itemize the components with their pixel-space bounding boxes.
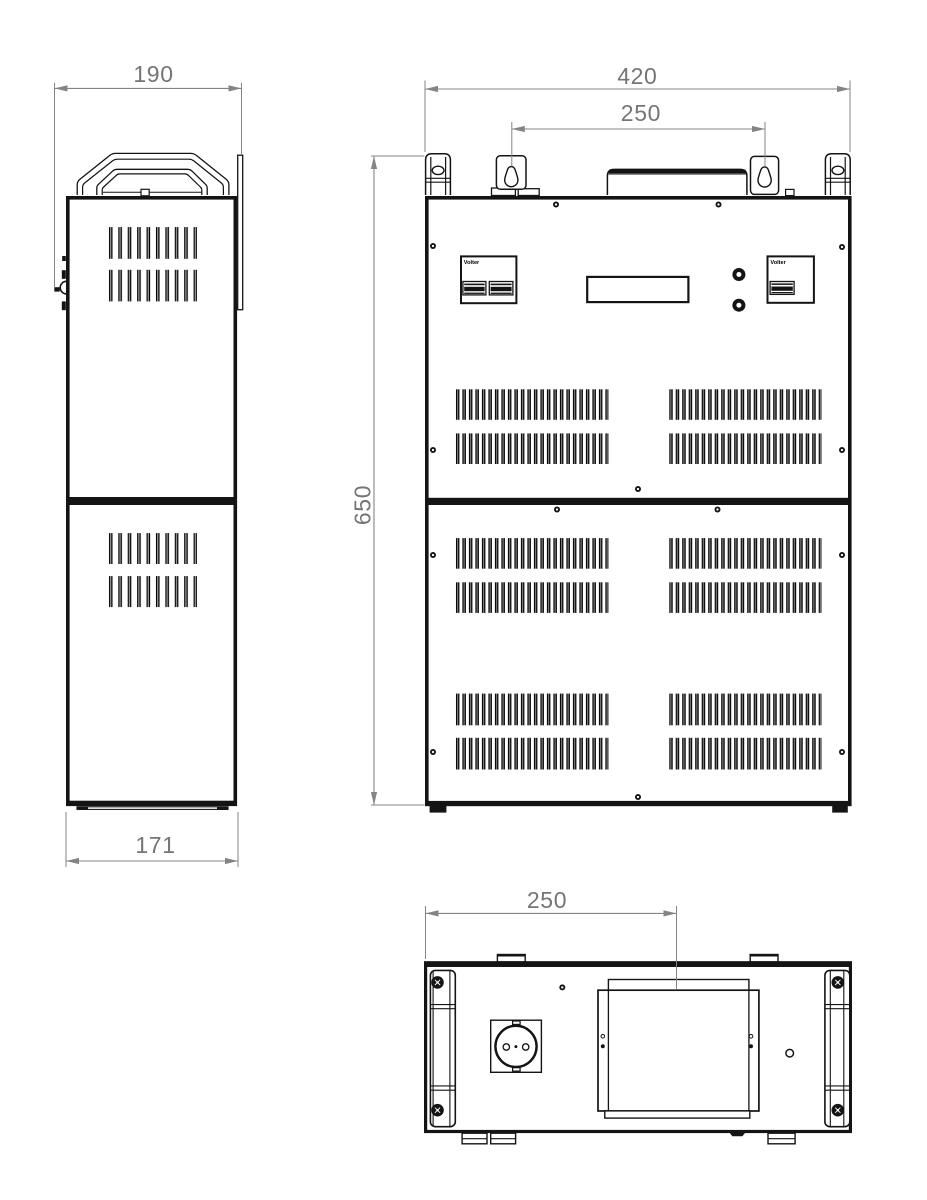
svg-text:171: 171	[135, 832, 175, 858]
svg-text:250: 250	[527, 887, 567, 913]
svg-text:Volter: Volter	[464, 260, 480, 266]
svg-text:190: 190	[133, 61, 173, 87]
svg-text:650: 650	[350, 485, 376, 525]
svg-text:Volter: Volter	[770, 260, 786, 266]
svg-text:250: 250	[621, 100, 661, 126]
svg-text:420: 420	[617, 63, 657, 89]
